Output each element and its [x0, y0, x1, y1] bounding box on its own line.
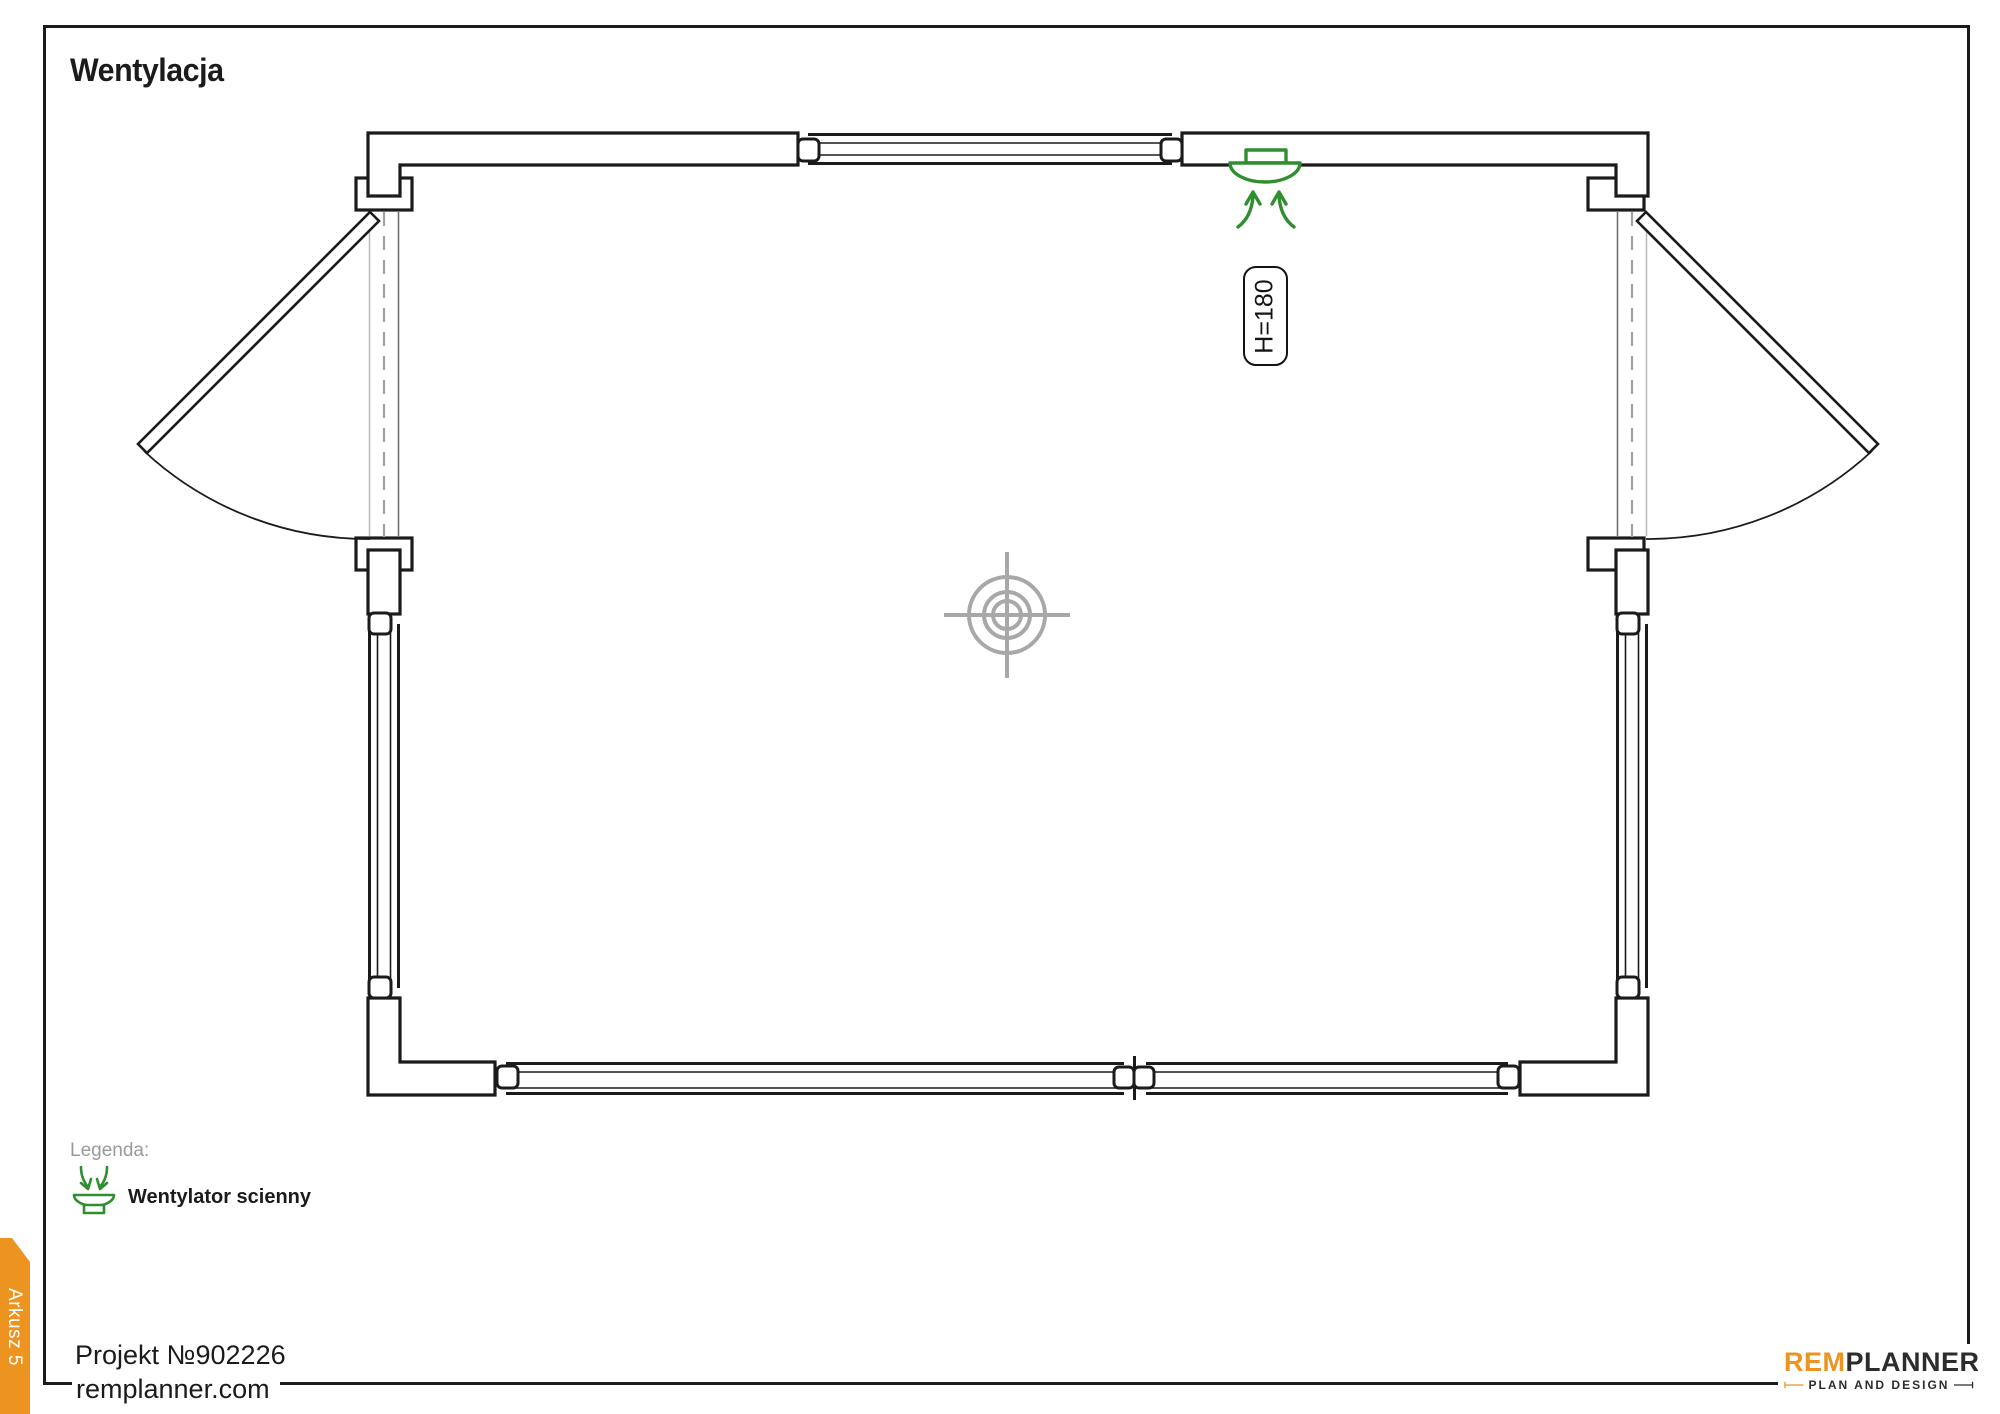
remplanner-logo: REMPLANNER PLAN AND DESIGN: [1778, 1344, 1976, 1398]
window-right: [1618, 624, 1647, 988]
brand-tagline: PLAN AND DESIGN: [1784, 1378, 1974, 1392]
door-opening-left: [370, 212, 399, 537]
legend-heading: Legenda:: [70, 1140, 149, 1162]
sheet-tab[interactable]: Arkusz 5: [0, 1238, 30, 1414]
window-top: [808, 135, 1172, 164]
wall-pier-left: [368, 550, 400, 614]
window-brackets: [369, 139, 1639, 1100]
website-link: remplanner.com: [72, 1374, 280, 1405]
brand-name-rest: PLANNER: [1846, 1347, 1980, 1377]
window-bottom-left: [506, 1064, 1124, 1094]
legend-item-label: Wentylator scienny: [128, 1186, 311, 1209]
wall-fan-icon: [70, 1164, 118, 1216]
wall-bottom-right: [1520, 998, 1648, 1095]
door-jambs: [356, 178, 1644, 570]
sheet-page: Wentylacja: [0, 0, 2000, 1414]
wall-bottom-left: [368, 998, 495, 1095]
center-target-icon: [944, 552, 1070, 678]
sheet-tab-label: Arkusz 5: [3, 1288, 25, 1366]
fan-height-text: H=180: [1251, 279, 1280, 353]
tagline-dash-right-icon: [1954, 1379, 1974, 1391]
fan-height-label: H=180: [1243, 266, 1288, 366]
wall-fan-icon: [1230, 150, 1300, 227]
brand-name-accent: REM: [1784, 1347, 1846, 1377]
wall-top-left: [368, 133, 798, 196]
project-number: Projekt №902226: [75, 1340, 286, 1371]
brand-name: REMPLANNER: [1784, 1348, 1974, 1376]
tagline-text: PLAN AND DESIGN: [1809, 1378, 1950, 1392]
door-opening-right: [1618, 212, 1647, 537]
door-left: [138, 212, 379, 539]
window-left: [370, 624, 399, 988]
tagline-dash-left-icon: [1784, 1379, 1804, 1391]
window-bottom-right: [1146, 1064, 1508, 1094]
wall-pier-right: [1616, 550, 1648, 614]
door-right: [1637, 212, 1878, 539]
